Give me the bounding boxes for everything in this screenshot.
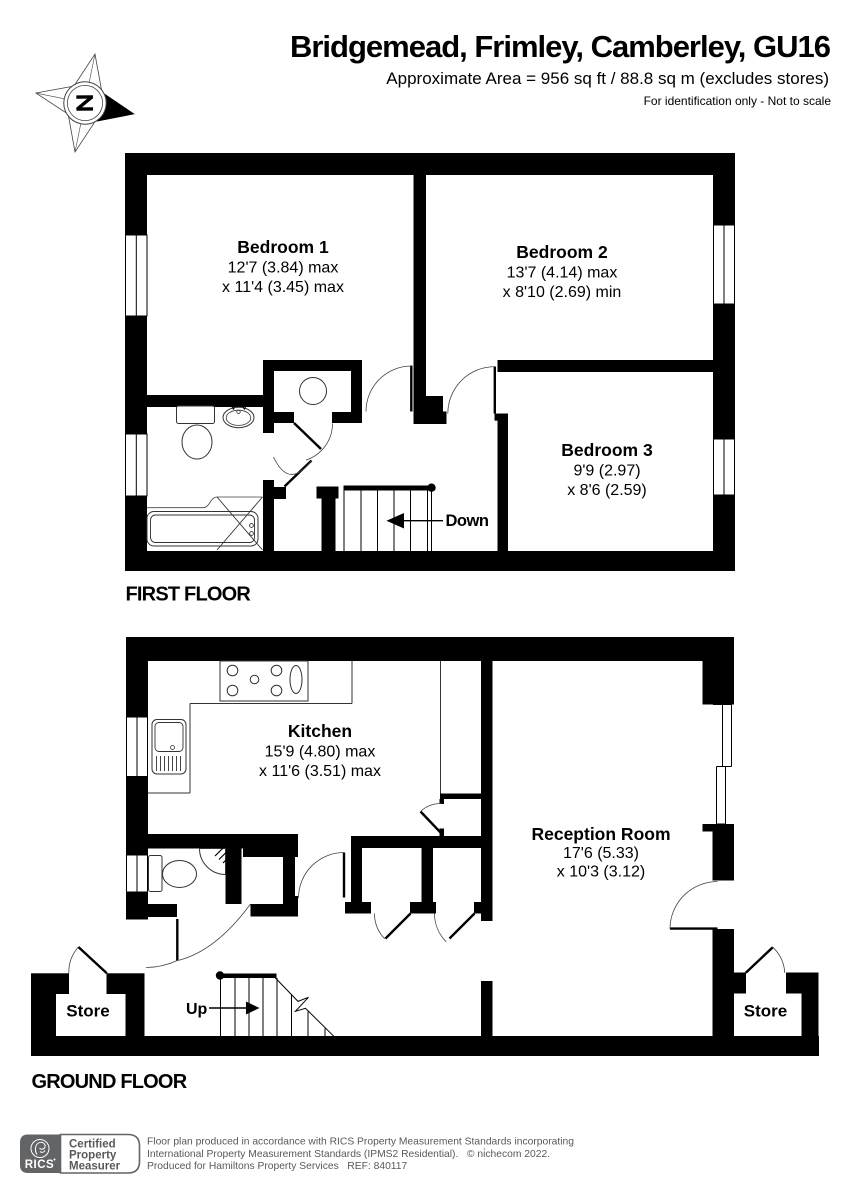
svg-text:x 8'6 (2.59): x 8'6 (2.59)	[567, 482, 647, 499]
svg-text:GROUND FLOOR: GROUND FLOOR	[32, 1071, 188, 1093]
svg-text:For identification only - Not: For identification only - Not to scale	[644, 94, 832, 108]
svg-text:Measurer: Measurer	[69, 1161, 121, 1173]
svg-text:Floor plan produced in accorda: Floor plan produced in accordance with R…	[147, 1137, 574, 1148]
svg-text:x 11'6 (3.51) max: x 11'6 (3.51) max	[259, 763, 381, 780]
svg-text:RICS: RICS	[25, 1159, 54, 1171]
svg-text:International Property Measure: International Property Measurement Stand…	[147, 1147, 550, 1160]
svg-text:Produced for Hamiltons Propert: Produced for Hamiltons Property Services…	[147, 1161, 407, 1172]
svg-text:Up: Up	[186, 1001, 208, 1018]
svg-text:Bridgemead, Frimley, Camberley: Bridgemead, Frimley, Camberley, GU16	[290, 29, 831, 64]
svg-text:Kitchen: Kitchen	[288, 721, 352, 741]
svg-text:x 8'10 (2.69) min: x 8'10 (2.69) min	[503, 284, 622, 301]
svg-text:Bedroom 1: Bedroom 1	[237, 237, 329, 257]
svg-text:9'9 (2.97): 9'9 (2.97)	[573, 463, 640, 480]
svg-text:Approximate Area = 956 sq ft /: Approximate Area = 956 sq ft / 88.8 sq m…	[386, 69, 829, 88]
svg-text:13'7 (4.14) max: 13'7 (4.14) max	[507, 265, 618, 282]
svg-text:Down: Down	[446, 512, 489, 530]
svg-text:Bedroom 2: Bedroom 2	[516, 242, 608, 262]
svg-text:17'6 (5.33): 17'6 (5.33)	[563, 845, 639, 862]
svg-text:x 10'3 (3.12): x 10'3 (3.12)	[557, 864, 645, 881]
svg-text:Store: Store	[744, 1002, 787, 1021]
svg-text:Bedroom 3: Bedroom 3	[561, 440, 653, 460]
svg-text:x 11'4 (3.45) max: x 11'4 (3.45) max	[222, 279, 344, 296]
svg-text:12'7 (3.84) max: 12'7 (3.84) max	[228, 260, 339, 277]
svg-text:15'9 (4.80) max: 15'9 (4.80) max	[265, 744, 376, 761]
svg-text:Store: Store	[66, 1002, 109, 1021]
svg-text:FIRST FLOOR: FIRST FLOOR	[126, 584, 252, 606]
svg-text:Reception Room: Reception Room	[531, 824, 670, 844]
